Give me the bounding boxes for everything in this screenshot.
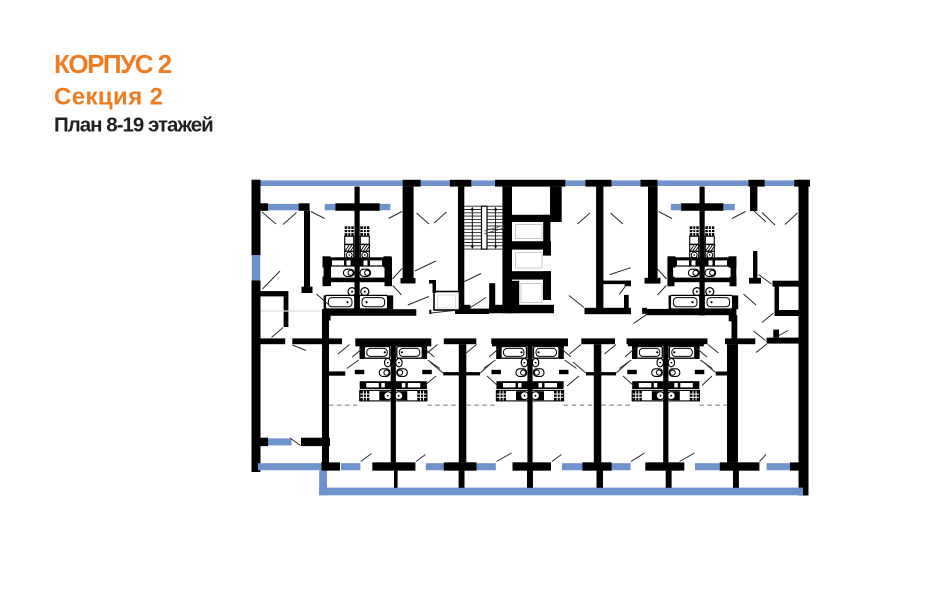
svg-text:КОРПУС 2: КОРПУС 2 (54, 49, 172, 79)
svg-text:План 8-19 этажей: План 8-19 этажей (54, 114, 213, 137)
svg-text:Секция 2: Секция 2 (54, 84, 163, 111)
